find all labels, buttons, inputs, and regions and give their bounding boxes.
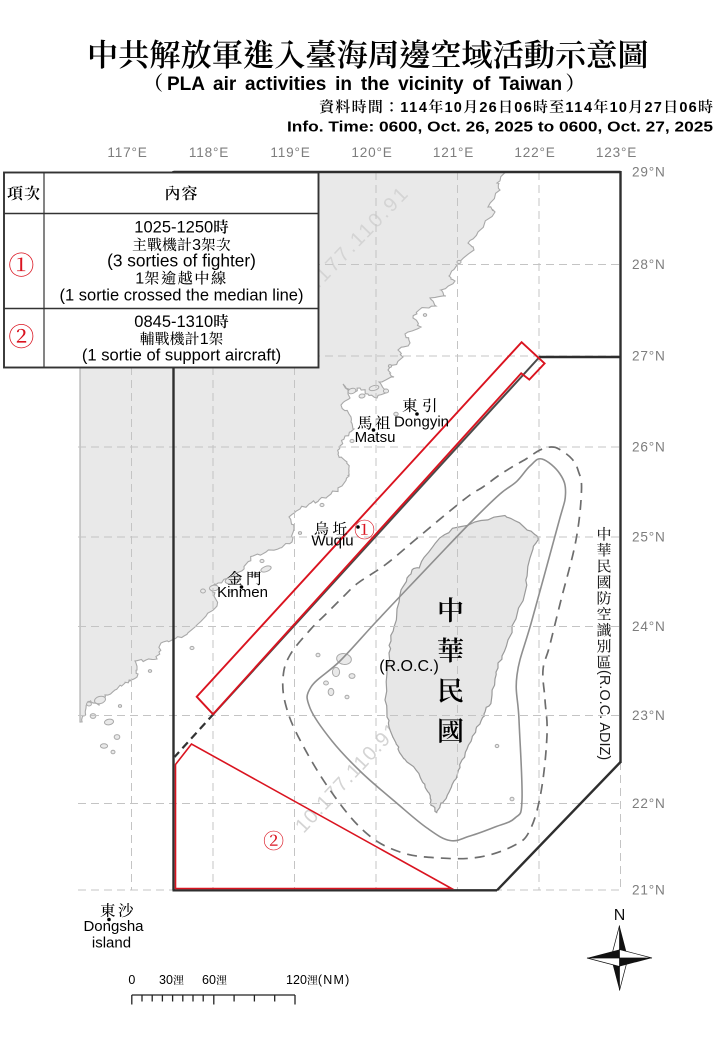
svg-text:118°E: 118°E (189, 145, 229, 160)
svg-text:122°E: 122°E (514, 145, 555, 160)
svg-text:26: 26 (479, 100, 498, 116)
svg-text:114: 114 (565, 100, 593, 116)
svg-text:21°N: 21°N (632, 883, 666, 898)
svg-text:(R.O.C.): (R.O.C.) (379, 658, 439, 675)
svg-text:N: N (614, 907, 626, 924)
svg-text:27°N: 27°N (632, 349, 666, 364)
svg-text:1: 1 (135, 271, 144, 288)
svg-text:23°N: 23°N (632, 708, 666, 723)
svg-text:Wuqiu: Wuqiu (311, 533, 353, 550)
svg-text:Dongsha: Dongsha (83, 918, 144, 935)
svg-text:114: 114 (400, 100, 428, 116)
svg-text:27: 27 (645, 100, 664, 116)
svg-text:Info. Time: 0600, Oct. 26, 202: Info. Time: 0600, Oct. 26, 2025 to 0600,… (287, 120, 713, 136)
svg-text:island: island (92, 935, 131, 952)
svg-text:10: 10 (445, 100, 464, 116)
svg-text:25°N: 25°N (632, 530, 666, 545)
svg-text:30: 30 (159, 973, 173, 987)
svg-text:PLA air activities in the vici: PLA air activities in the vicinity of Ta… (167, 74, 562, 95)
svg-text:28°N: 28°N (632, 257, 666, 272)
svg-text:06: 06 (679, 100, 698, 116)
svg-text:24°N: 24°N (632, 619, 666, 634)
svg-text:121°E: 121°E (433, 145, 474, 160)
svg-text:(1 sortie of support aircraft): (1 sortie of support aircraft) (82, 346, 281, 365)
svg-text:120: 120 (286, 973, 307, 987)
svg-text:06: 06 (514, 100, 533, 116)
svg-text:Matsu: Matsu (355, 429, 396, 446)
svg-text:0: 0 (128, 973, 135, 987)
svg-text:26°N: 26°N (632, 440, 666, 455)
svg-text:1025-1250: 1025-1250 (134, 219, 213, 237)
svg-text:Dongyin: Dongyin (394, 414, 449, 431)
svg-text:10: 10 (610, 100, 629, 116)
svg-text:0845-1310: 0845-1310 (134, 313, 213, 331)
svg-text:(NM): (NM) (318, 973, 351, 987)
svg-text:(R.O.C. ADIZ): (R.O.C. ADIZ) (596, 670, 612, 760)
svg-text:(3 sorties of fighter): (3 sorties of fighter) (107, 251, 256, 271)
svg-text:29°N: 29°N (632, 165, 666, 180)
svg-text:60: 60 (202, 973, 216, 987)
svg-text:123°E: 123°E (596, 145, 637, 160)
svg-text:117°E: 117°E (107, 145, 147, 160)
svg-text:(1 sortie crossed the median l: (1 sortie crossed the median line) (60, 287, 304, 305)
svg-text:119°E: 119°E (270, 145, 310, 160)
svg-text:22°N: 22°N (632, 796, 666, 811)
svg-text:120°E: 120°E (351, 145, 392, 160)
